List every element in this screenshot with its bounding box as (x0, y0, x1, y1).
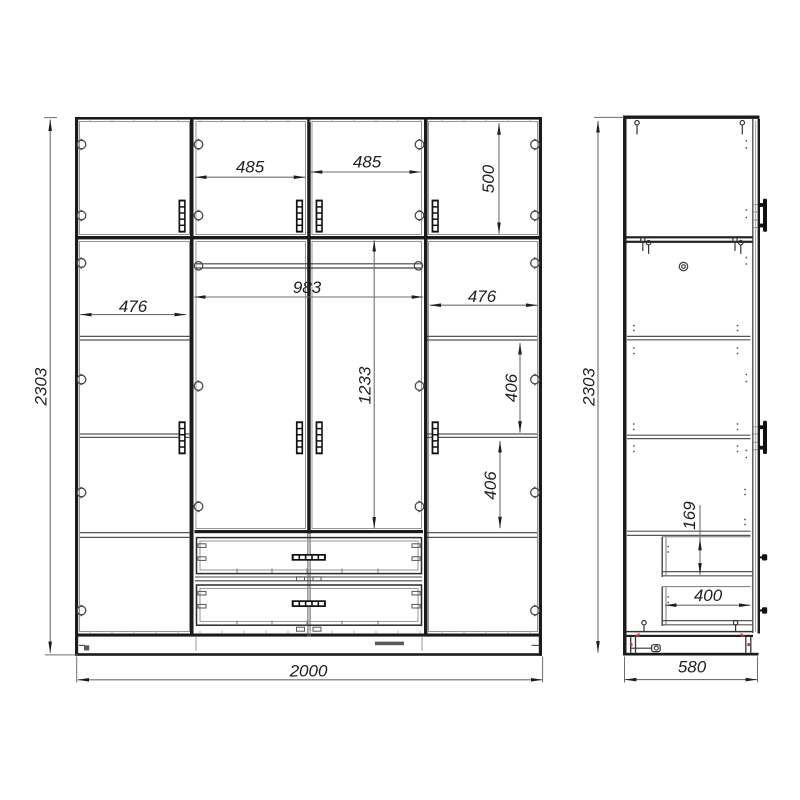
svg-text:406: 406 (502, 373, 521, 402)
svg-text:2000: 2000 (289, 662, 328, 681)
svg-text:2303: 2303 (32, 367, 51, 406)
svg-text:485: 485 (353, 153, 382, 172)
svg-text:580: 580 (678, 658, 707, 677)
svg-text:400: 400 (694, 586, 723, 605)
svg-text:983: 983 (293, 278, 322, 297)
svg-text:169: 169 (680, 501, 699, 530)
svg-text:406: 406 (481, 471, 500, 500)
svg-text:500: 500 (479, 164, 498, 193)
svg-text:2303: 2303 (580, 368, 599, 407)
svg-text:476: 476 (119, 297, 148, 316)
svg-text:1233: 1233 (355, 366, 374, 404)
svg-text:485: 485 (236, 158, 265, 177)
svg-text:476: 476 (468, 287, 497, 306)
